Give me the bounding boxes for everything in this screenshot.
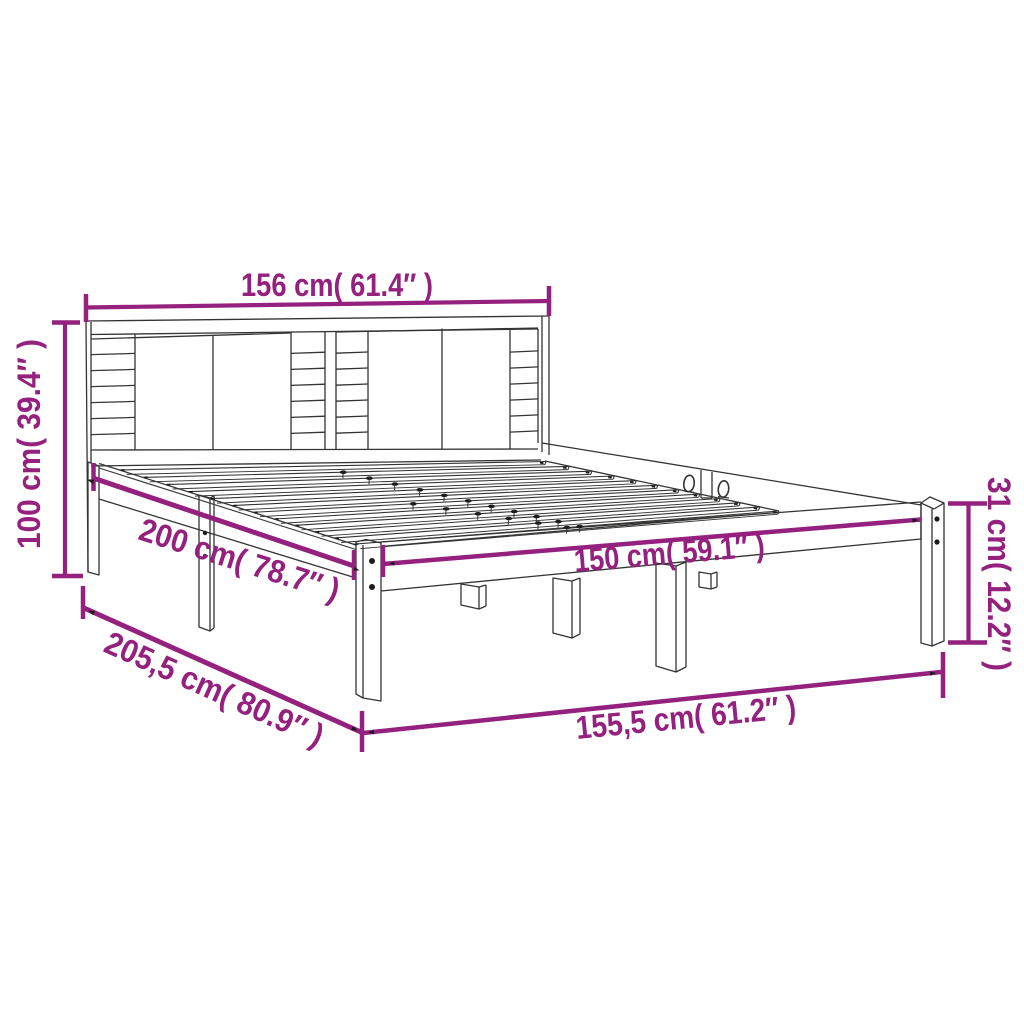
svg-text:100 cm( 39.4″ ): 100 cm( 39.4″ ) bbox=[11, 339, 47, 549]
svg-text:31 cm( 12.2″ ): 31 cm( 12.2″ ) bbox=[981, 477, 1017, 671]
svg-text:156 cm( 61.4″ ): 156 cm( 61.4″ ) bbox=[241, 267, 433, 303]
